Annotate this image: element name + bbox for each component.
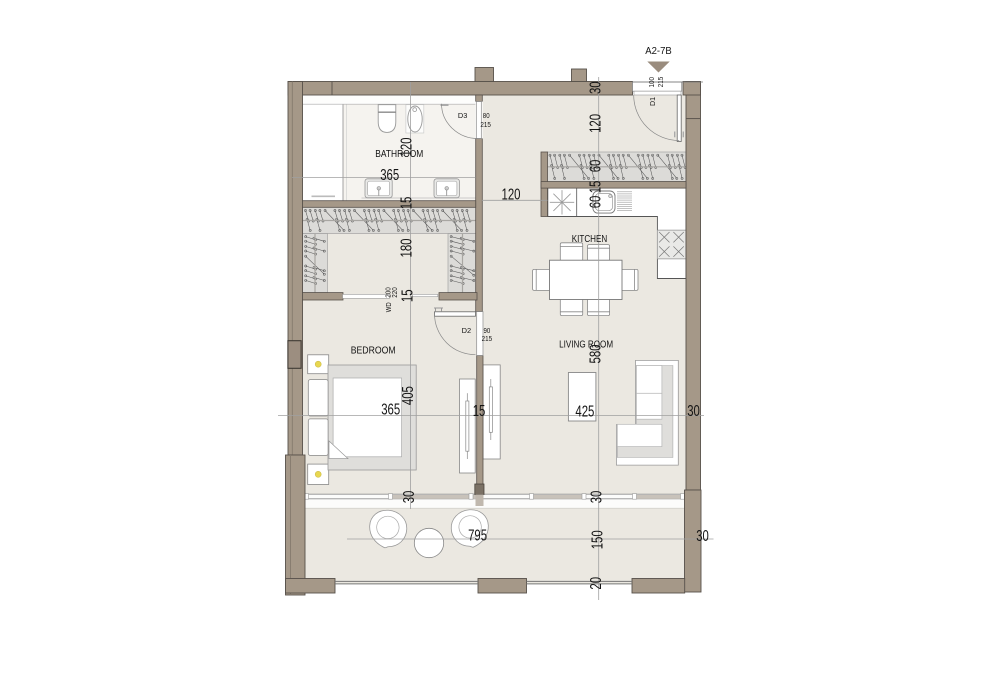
svg-text:405: 405 [400, 386, 417, 405]
svg-text:30: 30 [587, 81, 604, 94]
svg-text:15: 15 [399, 290, 416, 303]
svg-text:15: 15 [587, 181, 604, 194]
svg-text:30: 30 [589, 490, 606, 503]
svg-text:LIVING ROOM: LIVING ROOM [559, 339, 613, 351]
svg-text:100: 100 [647, 77, 656, 88]
svg-text:120: 120 [587, 114, 604, 133]
svg-text:220: 220 [390, 287, 399, 298]
svg-text:180: 180 [399, 238, 416, 257]
svg-text:795: 795 [468, 528, 487, 545]
svg-text:365: 365 [380, 167, 399, 184]
svg-text:BEDROOM: BEDROOM [351, 344, 396, 356]
svg-text:30: 30 [696, 528, 709, 545]
svg-text:D2: D2 [462, 326, 472, 335]
svg-text:D3: D3 [458, 111, 468, 120]
svg-text:15: 15 [473, 403, 486, 420]
svg-text:150: 150 [590, 530, 607, 549]
svg-text:30: 30 [401, 490, 418, 503]
svg-text:20: 20 [588, 577, 605, 590]
svg-text:215: 215 [482, 334, 493, 343]
svg-text:WD: WD [384, 302, 393, 312]
svg-text:365: 365 [381, 402, 400, 419]
svg-text:60: 60 [587, 159, 604, 172]
svg-text:120: 120 [399, 137, 416, 156]
svg-text:215: 215 [480, 120, 491, 129]
svg-text:A2-7B: A2-7B [645, 46, 672, 57]
svg-text:425: 425 [575, 403, 594, 420]
svg-text:30: 30 [687, 403, 700, 420]
svg-text:580: 580 [587, 344, 604, 363]
svg-text:60: 60 [587, 195, 604, 208]
svg-text:215: 215 [656, 77, 665, 88]
svg-text:D1: D1 [648, 97, 657, 106]
svg-text:80: 80 [483, 111, 490, 120]
svg-text:KITCHEN: KITCHEN [572, 233, 608, 245]
svg-text:120: 120 [502, 187, 521, 204]
svg-text:15: 15 [399, 197, 416, 210]
